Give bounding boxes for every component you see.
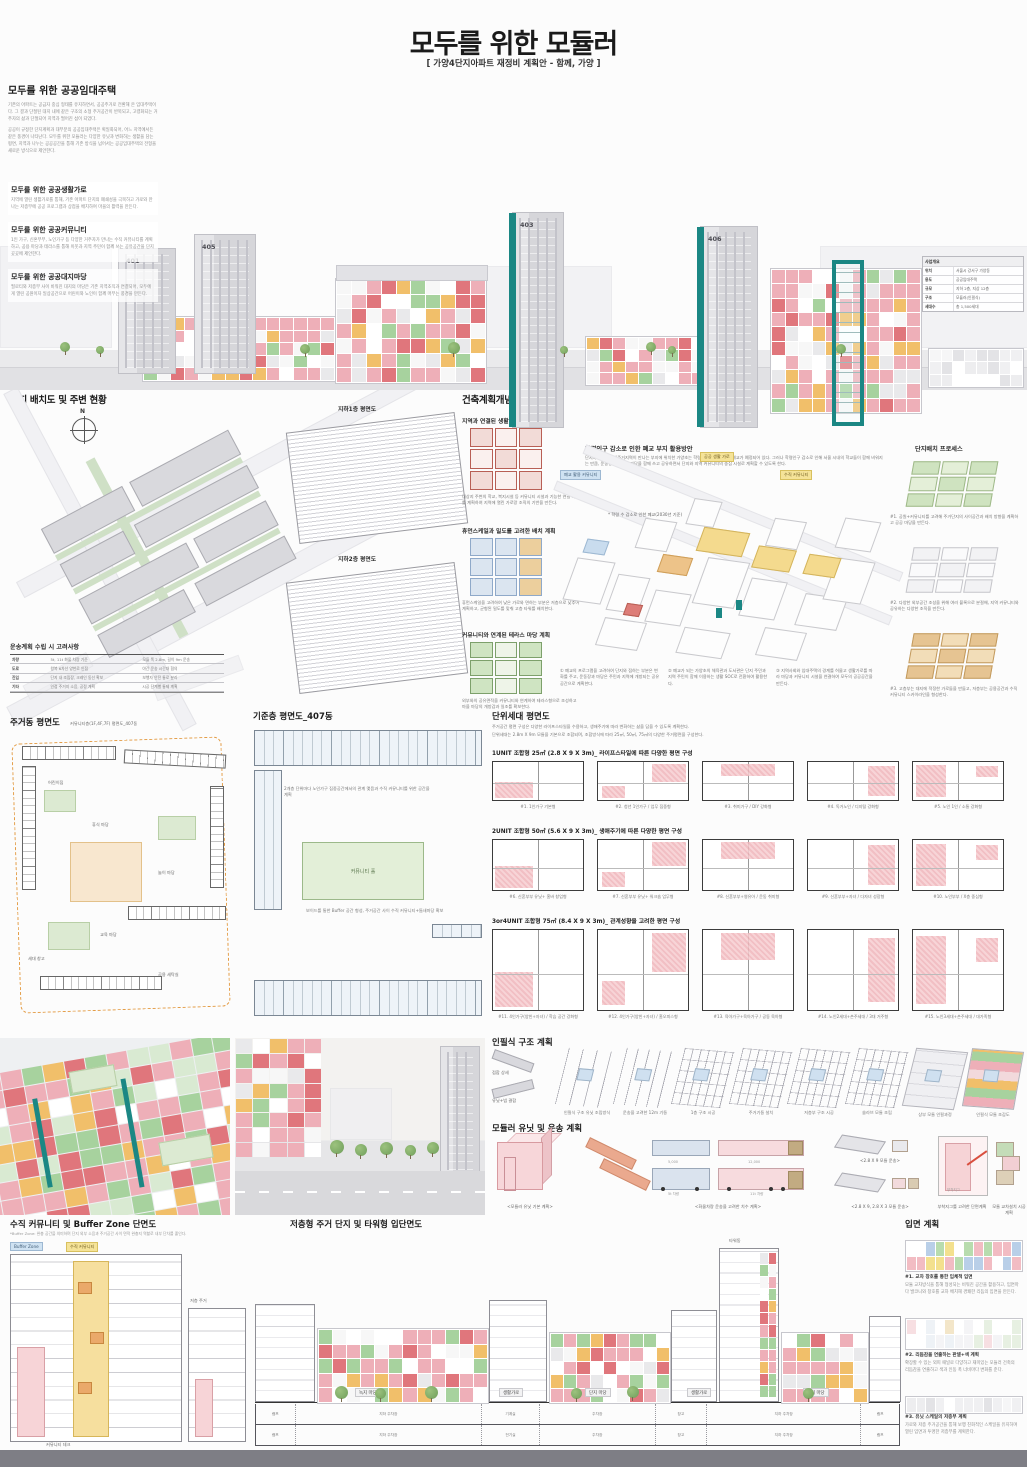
truck-top-view-small (652, 1140, 710, 1156)
module-cell (630, 1334, 642, 1347)
infill-step-caption: 슬라브 모듈 조립 (850, 1110, 904, 1116)
module-cell (867, 342, 880, 355)
block-cell (908, 477, 937, 491)
module-cell (786, 342, 799, 355)
module-cell (626, 350, 638, 361)
module-cell (783, 1348, 796, 1361)
module-cell (786, 270, 799, 283)
module-cell (1003, 1320, 1012, 1334)
intro-paragraph-2: 공공이 규정한 단지계획과 대부분의 공공임대주택은 획일화되어, 어느 지역에… (8, 127, 158, 155)
module-cell (760, 1277, 768, 1288)
summary-value: 총 1,500세대 (954, 303, 981, 311)
module-cell (644, 1348, 656, 1361)
table-row: 진입 단지 내 조립장, 크레인 동선 확보 보행자 안전 통로 분리 (10, 673, 224, 682)
module-cell (1012, 1242, 1021, 1256)
module-cell (797, 1348, 810, 1361)
unit-card-label: #8. 신혼부부+영유아 / 운동 취미형 (702, 894, 794, 900)
module-cell (769, 1253, 777, 1264)
unit-card-label: #1. 1인가구 기본형 (492, 804, 584, 810)
module-cell (446, 1374, 459, 1388)
block-cell (969, 461, 998, 475)
block-cell (495, 538, 518, 556)
unit-card: #11. 4인가구(양친+자녀) / 학습 공간 강화형 (492, 929, 584, 1019)
module-cell (308, 356, 321, 368)
module-cell (894, 284, 907, 297)
module-cell (471, 339, 485, 353)
block-cell (906, 579, 935, 593)
module-cell (319, 1345, 332, 1359)
street-render-photo (235, 1038, 485, 1215)
block-cell (495, 578, 518, 596)
truck2-label: 11t 차량 (750, 1192, 763, 1197)
module-cell (474, 1345, 487, 1359)
module-cell (267, 343, 280, 355)
tower-405-label: 405 (202, 243, 216, 251)
facade-item-1-body: 모듈 교차방식을 통해 형성되는 비워진 공간을 활용하고, 입면마다 발코니와… (905, 1282, 1019, 1296)
concept-tag-school: 폐교 활용 커뮤니티 (560, 470, 601, 480)
block-cell (963, 579, 992, 593)
module-cell (1003, 1398, 1012, 1412)
module-cell (964, 1242, 973, 1256)
unit-card-label: #15. 노인3세대+손주세대 / 대가족형 (912, 1014, 1004, 1020)
module-cell (936, 1398, 945, 1412)
module-cell (337, 368, 351, 382)
module-cell (403, 1374, 416, 1388)
module-cell (813, 356, 826, 369)
module-cell (813, 284, 826, 297)
module-cell (403, 1388, 416, 1402)
intro-section-street: 모두를 위한 공공생활가로 지역에 열린 생활가로를 통해, 기존 아파트 단지… (8, 182, 158, 215)
module-cell (288, 1054, 304, 1068)
summary-rows: 위치 서울시 강서구 가양동 용도 공공임대주택 규모 지하 2층, 지상 12… (923, 266, 1023, 311)
module-cell (769, 1313, 777, 1324)
block-cell (908, 563, 937, 577)
module-cell (253, 1039, 269, 1053)
module-cell (867, 270, 880, 283)
summary-key: 세대수 (923, 303, 954, 311)
ground-label-2: 생활가로 (499, 1388, 523, 1397)
module-cell (799, 284, 812, 297)
block-cell (935, 493, 964, 507)
tower-module-edge (760, 1253, 776, 1397)
module-cell (1000, 362, 1011, 373)
module-cell (216, 1178, 230, 1198)
block-cell (940, 461, 969, 475)
module-cell (880, 284, 893, 297)
aerial-modules (0, 1038, 230, 1215)
module-cell (347, 1359, 360, 1373)
module-cell (617, 1375, 629, 1388)
module-cell (236, 1099, 252, 1113)
label-lowrise: 저층 주거 (190, 1298, 207, 1304)
module-cell (679, 350, 691, 361)
module-cell (977, 350, 988, 361)
module-cell (880, 370, 893, 383)
module-cell (964, 1320, 973, 1334)
module-cell (347, 1345, 360, 1359)
tower-core (697, 227, 704, 427)
module-cell (772, 356, 785, 369)
concept-main-title: 학령인구 감소로 인한 폐교 부지 활용방안 (585, 444, 885, 453)
block-cell (519, 660, 542, 676)
concept-note: * 학령 수 감소로 인한 폐교(2030년 기준) (608, 512, 682, 518)
infill-step-caption: 주거기둥 설치 (734, 1110, 788, 1116)
module-cell (352, 295, 366, 309)
unit-card: #3. 취미가구 / DIY 강화형 (702, 761, 794, 809)
module-cell (367, 368, 381, 382)
module-cell (772, 370, 785, 383)
module-cell (267, 331, 280, 343)
module-cell (894, 399, 907, 412)
module-cell (772, 342, 785, 355)
concept-axonometric: 폐교 활용 커뮤니티 공공 생활 가로 수직 커뮤니티 (552, 478, 882, 666)
infill-legend: 접합 상세 유닛+빔 결합 (492, 1056, 554, 1104)
module-cell (1011, 362, 1022, 373)
module-cell (786, 327, 799, 340)
transport-considerations: 운송계획 수립 시 고려사항 차량 5t, 11t 화물 차량 기준 모듈 폭 … (10, 642, 224, 693)
module-cell (1012, 1335, 1021, 1349)
module-cell (432, 1330, 445, 1344)
module-cell (397, 280, 411, 294)
module-cell (382, 324, 396, 338)
module-cell (984, 1398, 993, 1412)
module-cell (1011, 375, 1022, 386)
module-cell (894, 313, 907, 326)
unit-card: #7. 신혼부부 유닛+ 워크숍 업무형 (597, 839, 689, 899)
tower-label: 타워동 (729, 1238, 741, 1244)
module-cell (666, 362, 678, 373)
module-cell (460, 1374, 473, 1388)
module-cell (305, 1054, 321, 1068)
module-cell (591, 1334, 603, 1347)
unit-card-label: #2. 청년 1인가구 / 업무 집중형 (597, 804, 689, 810)
block-cell (940, 633, 969, 647)
jig-caption: 부착지그를 고려한 단면계획 (928, 1204, 996, 1210)
unit-plan-title: 단위세대 평면도 (492, 710, 550, 722)
module-cell (797, 1375, 810, 1388)
module-cell (1000, 375, 1011, 386)
intro-paragraph-1: 기존의 아파트는 공급자 중심 형태를 유지하면서, 공공주거로 전환해 온 임… (8, 102, 158, 123)
module-cell (236, 1084, 252, 1098)
module-cell (760, 1265, 768, 1276)
module-cell (591, 1375, 603, 1388)
block-cell (470, 558, 493, 576)
facade-plan-title: 입면 계획 (905, 1218, 939, 1230)
module-box (892, 1178, 906, 1189)
module-cell (236, 1069, 252, 1083)
module-cell (294, 318, 307, 330)
module-cell (288, 1128, 304, 1142)
module-cell (1, 1198, 24, 1215)
module-cell (786, 299, 799, 312)
module-cell (854, 1375, 867, 1388)
module-cell (811, 1362, 824, 1375)
page-title: 모두를 위한 모듈러 (0, 22, 1027, 61)
module-cell (854, 1362, 867, 1375)
module-cell (799, 399, 812, 412)
summary-key: 위치 (923, 267, 954, 275)
process-step1-caption: #1. 공원+커뮤니티를 고려해 주거단지의 사이공간과 배치 방향을 계획하고… (890, 514, 1022, 527)
parking-row: 램프 지하 주차장 전기실 주차장 창고 지하 주차장 램프 (255, 1425, 900, 1446)
module-cell (926, 1398, 935, 1412)
module-cell (653, 350, 665, 361)
concept-caption-1: ① 폐교의 프로그램을 고려하여 단지와 접하는 부분은 변화를 주고, 운동장… (560, 668, 660, 687)
table-row: 도로 왕복 6차선 양천로 인접 야간 운송 시간대 협의 (10, 664, 224, 673)
infill-step: 1층 구조 시공 (676, 1050, 730, 1118)
module-cell (426, 324, 440, 338)
unit-card: #1. 1인가구 기본형 (492, 761, 584, 809)
module-cell (319, 1374, 332, 1388)
unit-group-2-row: #6. 신혼부부 유닛+ 홈바 창업형 #7. 신혼부부 유닛+ 워크숍 업무형… (492, 839, 1022, 899)
module-cell (786, 370, 799, 383)
module-cell (267, 368, 280, 380)
unit-plan-drawing (807, 929, 899, 1011)
module-cell (382, 280, 396, 294)
module-cell (613, 338, 625, 349)
module-cell (352, 280, 366, 294)
module-cell (955, 1242, 964, 1256)
module-cell (577, 1362, 589, 1375)
module-cell (411, 324, 425, 338)
block-cell (519, 471, 542, 490)
concept-section-title: 건축계획개념 (462, 392, 513, 406)
module-cell (460, 1388, 473, 1402)
block-cell (969, 547, 998, 561)
stack-module-tan (996, 1170, 1014, 1185)
module-cell (945, 1242, 954, 1256)
module-cell (288, 1039, 304, 1053)
jig-diagram: 부착지그 (938, 1136, 988, 1196)
module-cell (854, 1348, 867, 1361)
module-cell (352, 309, 366, 323)
module-cell (907, 284, 920, 297)
module-cell (446, 1388, 459, 1402)
module-cell (894, 370, 907, 383)
module-cell (1000, 350, 1011, 361)
module-cell (964, 1398, 973, 1412)
module-cell (783, 1389, 796, 1402)
facade-item-2-body: 확장할 수 있는 외피 패널로 다양하고 재미있는 모듈러 건축의 리듬감을 연… (905, 1360, 1019, 1374)
module-cell (639, 362, 651, 373)
intro-section-community-title: 모두를 위한 공공커뮤니티 (11, 225, 155, 235)
module-cell (403, 1345, 416, 1359)
module-cell (760, 1338, 768, 1349)
unit-group-1: 1UNIT 조합형 25㎡ (2.8 X 9 X 3m)_ 라이프스타일에 따른… (492, 748, 1022, 809)
block-cell (519, 428, 542, 447)
infill-step-caption: 인필식 구조 유닛 조립방식 (560, 1110, 614, 1116)
stack-module-pink (1002, 1156, 1020, 1171)
unit-card-label: #5. 노인 1인 / 소통 강화형 (912, 804, 1004, 810)
module-cell (270, 1113, 286, 1127)
module-cell (907, 1398, 916, 1412)
process-step2-diagram (906, 547, 999, 593)
module-cell (907, 356, 920, 369)
structure-diagram (671, 1048, 735, 1108)
module-cell (907, 327, 920, 340)
module-cell (564, 1362, 576, 1375)
module-cell (375, 1359, 388, 1373)
block-cell (470, 642, 493, 658)
module-cell (352, 368, 366, 382)
module-cell (441, 324, 455, 338)
module-cell (397, 368, 411, 382)
module-cell (867, 356, 880, 369)
module-caption-2: <2.8 X 9, 2.8 X 3 모듈 운송> (828, 1204, 932, 1210)
module-cell (446, 1359, 459, 1373)
module-cell (907, 1335, 916, 1349)
unit-plan-drawing (807, 839, 899, 891)
module-cell (772, 313, 785, 326)
block-cell (906, 493, 935, 507)
module-cell (772, 327, 785, 340)
b2-plan-label: 지하2층 평면도 (338, 554, 376, 563)
plan-label-storage: 세대 창고 (28, 956, 45, 962)
module-cell (826, 1375, 839, 1388)
module-cell (769, 1362, 777, 1373)
module-cell (367, 324, 381, 338)
module-cell (894, 342, 907, 355)
module-cell (613, 373, 625, 384)
module-cell (361, 1345, 374, 1359)
process-step3-diagram (906, 633, 999, 679)
module-box (908, 1178, 919, 1189)
module-cell (811, 1348, 824, 1361)
module-cell (446, 1345, 459, 1359)
dim-12000: 12,000 (748, 1160, 760, 1164)
module-cell (826, 1362, 839, 1375)
block-cell (911, 461, 940, 475)
module-cell (551, 1389, 563, 1402)
structure-diagram (729, 1048, 793, 1108)
unit-card: #2. 청년 1인가구 / 업무 집중형 (597, 761, 689, 809)
module-cell (666, 373, 678, 384)
module-cell (867, 370, 880, 383)
module-cell (441, 295, 455, 309)
module-cell (867, 284, 880, 297)
module-cell (288, 1099, 304, 1113)
module-cell (813, 370, 826, 383)
residential-plan-canvas: 휴식 마당 교육 마당 놀이 마당 세대 창고 어린이집 공용 세탁실 (8, 724, 248, 1032)
plan-label-daycare: 어린이집 (48, 780, 63, 786)
truck-side-view-small (652, 1168, 710, 1190)
module-cell (813, 384, 826, 397)
unit-card: #8. 신혼부부+영유아 / 운동 취미형 (702, 839, 794, 899)
module-cell (418, 1330, 431, 1344)
poster: 모두를 위한 모듈러 [ 가양4단지아파트 재정비 계획안 - 함께, 가양 ]… (0, 0, 1027, 1467)
module-cell (907, 1242, 916, 1256)
module-cell (280, 356, 293, 368)
module-cell (270, 1054, 286, 1068)
summary-key: 구조 (923, 294, 954, 302)
block-cell (470, 678, 493, 694)
module-cell (630, 1362, 642, 1375)
module-cell (253, 1128, 269, 1142)
module-cell (974, 1242, 983, 1256)
module-cell (786, 313, 799, 326)
module-cell (456, 309, 470, 323)
module-cell (657, 1362, 669, 1375)
facade-strip-3 (905, 1396, 1023, 1414)
stack-caption: 모듈 교차설치 시공계획 (992, 1204, 1026, 1216)
module-cell (953, 350, 964, 361)
module-cell (474, 1359, 487, 1373)
teal-core-frame (832, 260, 864, 426)
block-cell (906, 665, 935, 679)
module-cell (760, 1374, 768, 1385)
module-cell (769, 1338, 777, 1349)
infill-step: 주거기둥 설치 (734, 1050, 788, 1118)
module-cell (397, 309, 411, 323)
module-cell (613, 350, 625, 361)
summary-row: 위치 서울시 강서구 가양동 (923, 266, 1023, 275)
module-cell (942, 362, 953, 373)
module-cell (965, 362, 976, 373)
module-cell (813, 270, 826, 283)
module-cell (253, 1099, 269, 1113)
module-cell (657, 1375, 669, 1388)
module-cell (456, 354, 470, 368)
b1-parking-plan (286, 412, 468, 544)
module-cell (352, 339, 366, 353)
facade-strip-2 (905, 1318, 1023, 1350)
module-cell (679, 362, 691, 373)
buffer-section-subtitle: *Buffer Zone: 완충 공간을 의미하며 단지 외부 소음과 주거공간… (10, 1231, 242, 1237)
module-cell (337, 295, 351, 309)
module-cell (1012, 1257, 1021, 1271)
module-cell (375, 1374, 388, 1388)
module-cell (984, 1242, 993, 1256)
module-cell (89, 1201, 112, 1215)
module-cell (389, 1330, 402, 1344)
module-cell (215, 1050, 230, 1070)
module-cell (319, 1359, 332, 1373)
module-cell (854, 1334, 867, 1347)
module-cell (308, 331, 321, 343)
module-cell (945, 1320, 954, 1334)
module-cell (657, 1348, 669, 1361)
module-cell (426, 354, 440, 368)
module-cell (382, 339, 396, 353)
module-cell (769, 1289, 777, 1300)
module-cell (551, 1362, 563, 1375)
unit-group-1-heading: 1UNIT 조합형 25㎡ (2.8 X 9 X 3m)_ 라이프스타일에 따른… (492, 748, 1022, 757)
summary-value: 서울시 강서구 가양동 (954, 267, 992, 275)
module-cell (760, 1289, 768, 1300)
unit-card: #9. 신혼부부+자녀 / 다자녀 성장형 (807, 839, 899, 899)
structure-diagram (845, 1048, 909, 1108)
module-cell (389, 1359, 402, 1373)
module-cell (786, 284, 799, 297)
module-cell (587, 338, 599, 349)
module-cell (604, 1375, 616, 1388)
typical-plan-title: 기준층 평면도_407동 (253, 710, 333, 722)
module-cell (321, 356, 334, 368)
module-cell (600, 362, 612, 373)
module-cell (604, 1348, 616, 1361)
module-cell (305, 1084, 321, 1098)
module-cell (799, 270, 812, 283)
block-cell (935, 579, 964, 593)
infill-step-caption: 저층부 구조 시공 (792, 1110, 846, 1116)
module-cell (471, 280, 485, 294)
module-cell (769, 1325, 777, 1336)
module-cell (352, 324, 366, 338)
module-cell (375, 1345, 388, 1359)
module-cell (955, 1257, 964, 1271)
unit-group-2-heading: 2UNIT 조합형 50㎡ (5.6 X 9 X 3m)_ 생애주기에 따른 다… (492, 826, 1022, 835)
street-road-surface (235, 1171, 485, 1215)
module-cell (977, 362, 988, 373)
